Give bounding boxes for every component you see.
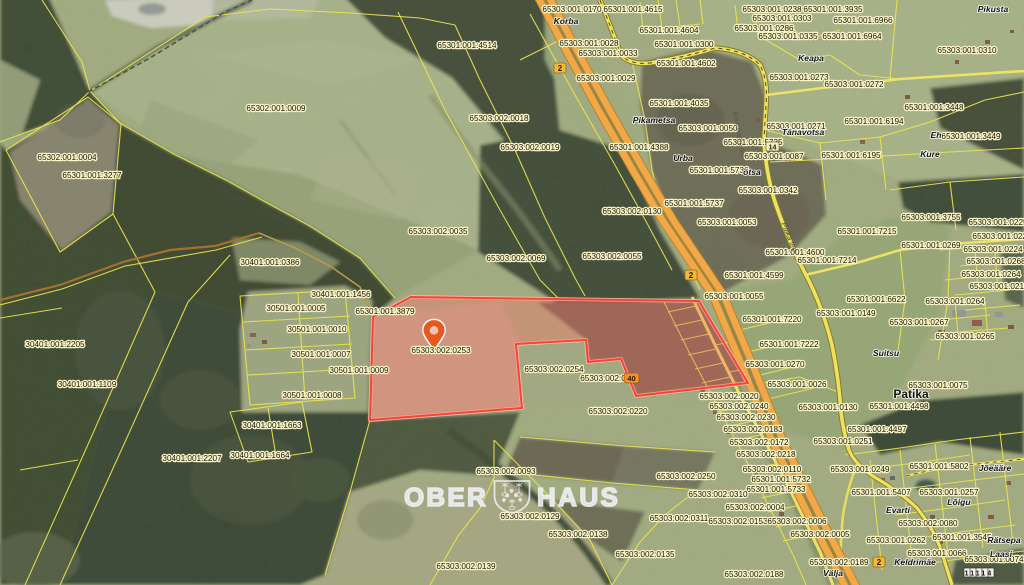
svg-text:65303:002:0220: 65303:002:0220	[588, 407, 648, 416]
svg-text:65303:002:0139: 65303:002:0139	[436, 562, 496, 571]
svg-text:40: 40	[627, 374, 635, 383]
svg-text:65303:002:0110: 65303:002:0110	[743, 465, 802, 474]
svg-text:65301:001:4035: 65301:001:4035	[649, 99, 709, 108]
svg-text:65303:001:0335: 65303:001:0335	[758, 32, 818, 41]
svg-text:30501:001:0009: 30501:001:0009	[329, 366, 389, 375]
svg-text:Rätsepa: Rätsepa	[987, 535, 1021, 545]
svg-text:65303:001:0053: 65303:001:0053	[697, 218, 757, 227]
svg-text:65302:001:0004: 65302:001:0004	[37, 153, 97, 162]
svg-text:65301:001:0269: 65301:001:0269	[901, 241, 961, 250]
svg-text:65303:002:0035: 65303:002:0035	[408, 227, 468, 236]
svg-text:65301:001:3277: 65301:001:3277	[62, 171, 122, 180]
svg-text:65301:001:7220: 65301:001:7220	[742, 315, 802, 324]
svg-text:30501:001:0007: 30501:001:0007	[291, 350, 351, 359]
svg-text:65303:001:0225: 65303:001:0225	[968, 218, 1024, 227]
svg-text:65303:002:0019: 65303:002:0019	[500, 143, 560, 152]
svg-text:65303:002:0311: 65303:002:0311	[650, 514, 709, 523]
svg-text:Tänavotsa: Tänavotsa	[782, 127, 825, 137]
svg-text:65303:001:0050: 65303:001:0050	[678, 124, 738, 133]
svg-text:otsa: otsa	[743, 167, 761, 177]
svg-text:65301:001:7214: 65301:001:7214	[797, 256, 857, 265]
svg-text:30401:001:1109: 30401:001:1109	[58, 380, 117, 389]
svg-text:65303:001:0033: 65303:001:0033	[578, 49, 638, 58]
svg-text:65301:001:3879: 65301:001:3879	[355, 307, 415, 316]
svg-text:65303:001:0303: 65303:001:0303	[752, 14, 812, 23]
svg-text:30401:001:2205: 30401:001:2205	[25, 340, 85, 349]
svg-text:65303:002:0183: 65303:002:0183	[723, 425, 783, 434]
svg-text:65301:001:0300: 65301:001:0300	[654, 40, 714, 49]
svg-text:65303:002:0055: 65303:002:0055	[582, 252, 642, 261]
svg-text:65303:001:0272: 65303:001:0272	[824, 80, 884, 89]
svg-text:65301:001:4599: 65301:001:4599	[724, 271, 784, 280]
svg-text:65301:001:3449: 65301:001:3449	[941, 132, 1001, 141]
svg-text:65303:002:0093: 65303:002:0093	[476, 467, 536, 476]
svg-text:65303:001:0264: 65303:001:0264	[925, 297, 985, 306]
svg-text:65303:002:0254: 65303:002:0254	[524, 365, 584, 374]
svg-text:65303:002:0138: 65303:002:0138	[548, 530, 608, 539]
svg-text:65303:001:0267: 65303:001:0267	[889, 318, 949, 327]
svg-text:65303:002:0130: 65303:002:0130	[602, 207, 662, 216]
svg-text:65303:001:0238: 65303:001:0238	[742, 5, 802, 14]
svg-text:65303:002:0080: 65303:002:0080	[898, 519, 958, 528]
svg-text:2: 2	[877, 558, 882, 567]
svg-text:65301:001:4388: 65301:001:4388	[609, 143, 669, 152]
svg-text:65303:001:0029: 65303:001:0029	[576, 74, 636, 83]
svg-text:65303:001:0310: 65303:001:0310	[937, 46, 997, 55]
svg-text:Suitsu: Suitsu	[873, 348, 900, 358]
svg-text:65303:001:0149: 65303:001:0149	[816, 309, 876, 318]
svg-text:30501:001:0010: 30501:001:0010	[287, 325, 347, 334]
svg-text:65301:001:6964: 65301:001:6964	[822, 32, 882, 41]
svg-text:65303:002:0020: 65303:002:0020	[699, 392, 759, 401]
svg-text:Jõeääre: Jõeääre	[979, 463, 1012, 473]
svg-text:65303:002:0218: 65303:002:0218	[736, 450, 796, 459]
svg-text:65303:001:0224: 65303:001:0224	[963, 245, 1023, 254]
svg-text:65301:001:4498: 65301:001:4498	[869, 402, 929, 411]
svg-text:Välja: Välja	[823, 568, 843, 578]
svg-text:65303:001:0251: 65303:001:0251	[813, 437, 873, 446]
svg-text:65301:001:5736: 65301:001:5736	[689, 166, 749, 175]
svg-text:65301:001:5733: 65301:001:5733	[746, 485, 806, 494]
svg-text:Lõigu: Lõigu	[947, 497, 971, 507]
svg-text:65303:002:0069: 65303:002:0069	[486, 254, 546, 263]
svg-text:65303:001:0228: 65303:001:0228	[972, 232, 1024, 241]
svg-text:65303:002:0230: 65303:002:0230	[716, 413, 776, 422]
svg-text:65303:002:0135: 65303:002:0135	[615, 550, 675, 559]
svg-text:65301:001:6195: 65301:001:6195	[821, 151, 881, 160]
svg-text:Pikusta: Pikusta	[978, 4, 1009, 14]
svg-text:65303:001:0249: 65303:001:0249	[830, 465, 890, 474]
svg-text:65303:001:0273: 65303:001:0273	[769, 73, 829, 82]
svg-text:65301:001:4514: 65301:001:4514	[437, 41, 497, 50]
svg-text:30401:001:2207: 30401:001:2207	[162, 454, 222, 463]
svg-text:Evarti: Evarti	[886, 505, 910, 515]
svg-text:2: 2	[689, 271, 694, 280]
svg-text:Urba: Urba	[673, 153, 693, 163]
svg-text:65301:001:3448: 65301:001:3448	[904, 103, 964, 112]
svg-text:65303:001:0216: 65303:001:0216	[969, 282, 1024, 291]
svg-text:30401:001:1663: 30401:001:1663	[242, 421, 302, 430]
svg-text:Patika: Patika	[893, 387, 929, 401]
svg-text:65303:002:0250: 65303:002:0250	[656, 472, 716, 481]
svg-text:30401:001:1456: 30401:001:1456	[311, 290, 371, 299]
svg-text:Keldrimäe: Keldrimäe	[894, 557, 936, 567]
svg-text:65301:001:4497: 65301:001:4497	[847, 425, 907, 434]
svg-text:65303:001:0268: 65303:001:0268	[966, 257, 1024, 266]
svg-text:65302:001:0009: 65302:001:0009	[246, 104, 306, 113]
svg-text:65301:001:6966: 65301:001:6966	[833, 16, 893, 25]
svg-text:Korba: Korba	[554, 16, 579, 26]
svg-text:30401:001:1664: 30401:001:1664	[230, 451, 290, 460]
svg-text:65303:002:0153: 65303:002:0153	[708, 517, 768, 526]
svg-text:65303:001:0264: 65303:001:0264	[961, 270, 1021, 279]
svg-text:65301:001:3545: 65301:001:3545	[932, 533, 992, 542]
svg-text:65303:001:0262: 65303:001:0262	[866, 536, 926, 545]
svg-text:30501:001:0005: 30501:001:0005	[266, 304, 326, 313]
svg-text:Kure: Kure	[920, 149, 940, 159]
svg-text:65301:001:4602: 65301:001:4602	[656, 59, 716, 68]
svg-text:11114: 11114	[965, 571, 994, 578]
svg-text:65303:001:0265: 65303:001:0265	[935, 332, 995, 341]
svg-text:65303:001:0055: 65303:001:0055	[704, 292, 764, 301]
svg-text:65303:002:0: 65303:002:0	[580, 374, 626, 383]
svg-text:30501:001:0008: 30501:001:0008	[282, 391, 342, 400]
svg-text:65303:001:0342: 65303:001:0342	[738, 186, 798, 195]
svg-text:Keapa: Keapa	[798, 53, 824, 63]
svg-text:65303:002:0240: 65303:002:0240	[709, 402, 769, 411]
svg-text:HAUS: HAUS	[537, 482, 620, 512]
svg-text:Laasi: Laasi	[990, 549, 1013, 559]
svg-text:65301:001:5407: 65301:001:5407	[851, 488, 911, 497]
svg-text:65303:002:0172: 65303:002:0172	[729, 438, 789, 447]
svg-text:65301:001:5737: 65301:001:5737	[664, 199, 724, 208]
svg-text:65303:002:0006: 65303:002:0006	[767, 517, 827, 526]
svg-text:65303:002:0189: 65303:002:0189	[809, 558, 869, 567]
svg-text:30401:001:0386: 30401:001:0386	[240, 258, 300, 267]
svg-text:65303:002:0310: 65303:002:0310	[688, 490, 748, 499]
svg-text:65303:001:0028: 65303:001:0028	[559, 39, 619, 48]
svg-text:65301:001:5802: 65301:001:5802	[909, 462, 969, 471]
svg-text:65303:002:0253: 65303:002:0253	[411, 346, 471, 355]
svg-text:65301:001:6194: 65301:001:6194	[844, 117, 904, 126]
svg-text:2: 2	[558, 64, 563, 73]
svg-text:65301:001:6622: 65301:001:6622	[846, 295, 906, 304]
svg-text:65301:001:4615: 65301:001:4615	[603, 5, 663, 14]
svg-text:65301:001:4604: 65301:001:4604	[639, 26, 699, 35]
svg-text:65303:001:0026: 65303:001:0026	[767, 380, 827, 389]
svg-text:65301:001:3935: 65301:001:3935	[803, 5, 863, 14]
svg-text:65301:001:7215: 65301:001:7215	[837, 227, 897, 236]
svg-text:65303:001:0270: 65303:001:0270	[745, 360, 805, 369]
svg-text:Pikametsa: Pikametsa	[633, 115, 676, 125]
svg-text:65303:001:0170: 65303:001:0170	[542, 5, 602, 14]
svg-text:65303:002:0188: 65303:002:0188	[724, 570, 784, 579]
svg-text:65301:001:5732: 65301:001:5732	[751, 475, 811, 484]
svg-text:OBER: OBER	[404, 482, 488, 512]
svg-text:65303:002:0129: 65303:002:0129	[500, 512, 560, 521]
svg-text:65303:001:3755: 65303:001:3755	[901, 213, 961, 222]
svg-text:65303:001:0087: 65303:001:0087	[744, 152, 804, 161]
svg-text:Eh: Eh	[931, 130, 942, 140]
svg-text:65303:002:0018: 65303:002:0018	[469, 114, 529, 123]
svg-text:65303:001:0130: 65303:001:0130	[798, 403, 858, 412]
svg-text:65303:002:0005: 65303:002:0005	[790, 530, 850, 539]
svg-text:65303:002:0004: 65303:002:0004	[725, 503, 785, 512]
svg-text:65303:001:0257: 65303:001:0257	[919, 488, 979, 497]
svg-text:65301:001:7222: 65301:001:7222	[759, 340, 819, 349]
svg-text:14: 14	[769, 145, 777, 152]
